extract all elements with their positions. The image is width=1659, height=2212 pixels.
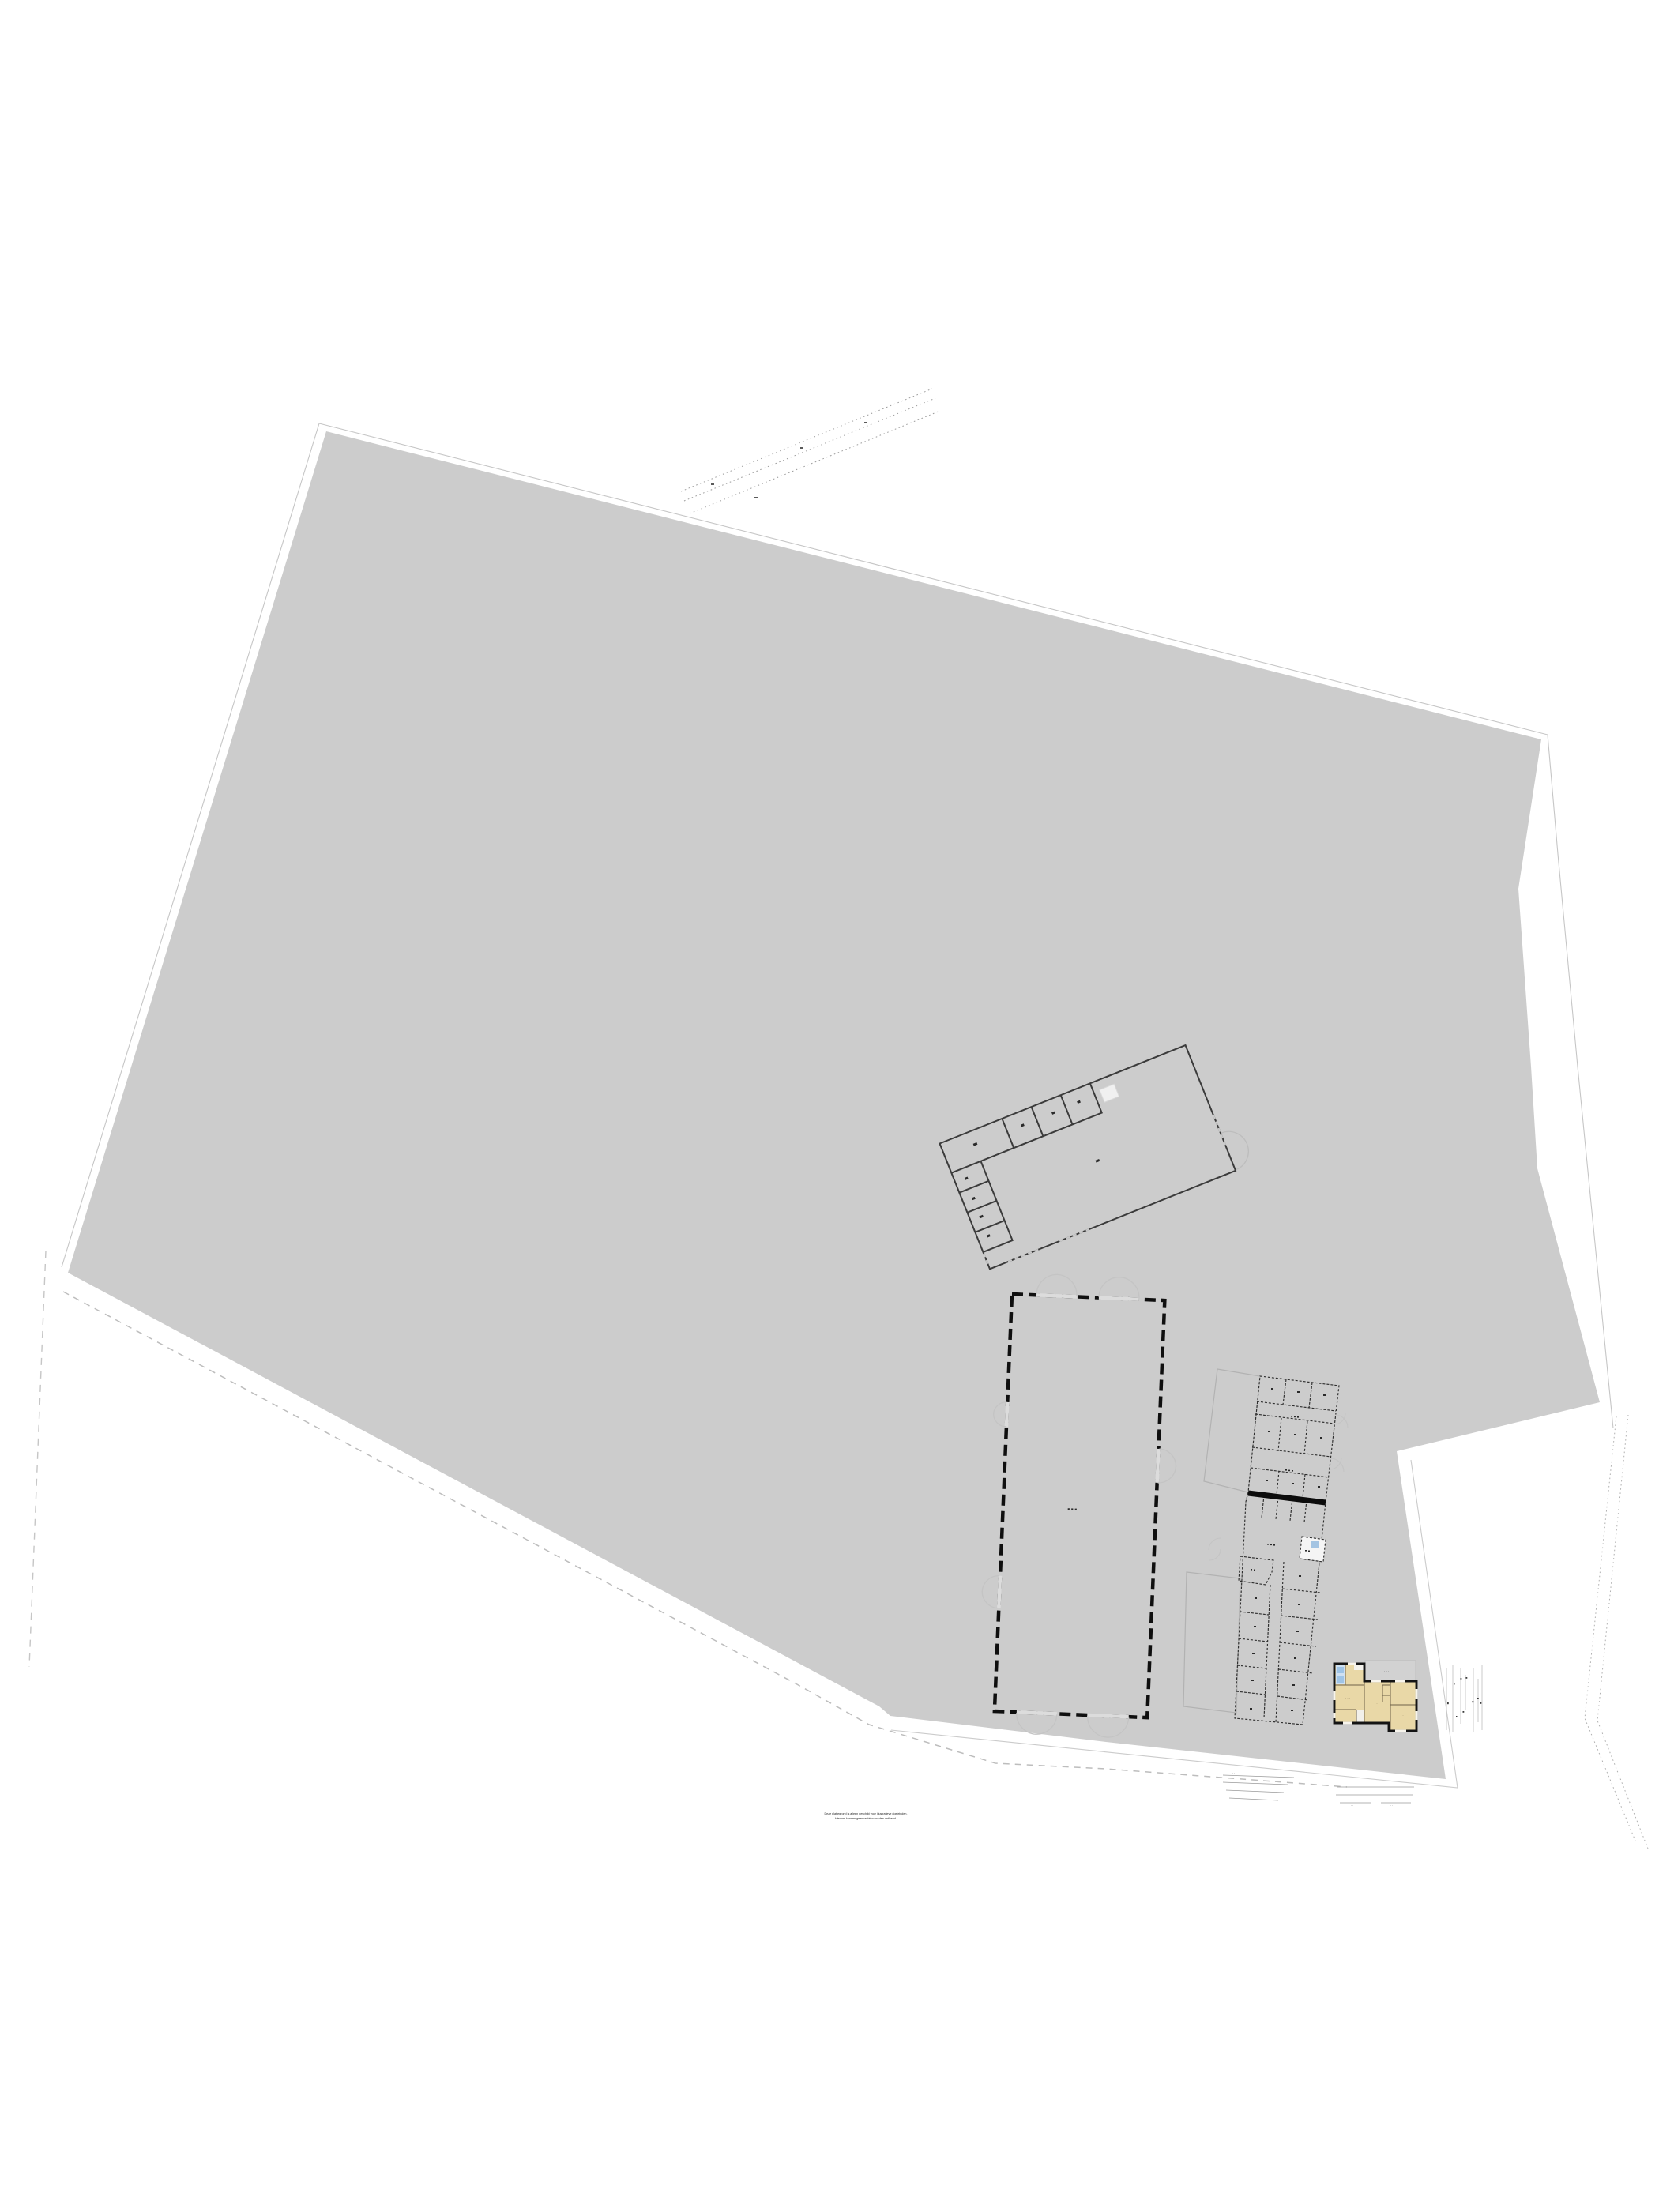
svg-text:. . .: . . .: [1384, 1668, 1389, 1672]
svg-text:Deze plattegrond is alleen ges: Deze plattegrond is alleen geschikt voor…: [825, 1812, 908, 1815]
svg-text:Hieraan kunnen geen rechten wo: Hieraan kunnen geen rechten worden ontle…: [835, 1817, 897, 1820]
svg-text:. . .: . . .: [1375, 1701, 1379, 1705]
svg-text:. .: . .: [1232, 1770, 1235, 1774]
svg-text:.: .: [1345, 1714, 1346, 1718]
svg-text:...: ...: [1206, 1624, 1209, 1629]
svg-text:. .: . .: [1390, 1803, 1393, 1807]
svg-text:. . .: . . .: [1401, 1692, 1405, 1696]
svg-text:. .: . .: [1351, 1803, 1353, 1807]
svg-text:. .: . .: [1371, 1782, 1373, 1786]
svg-text:. . .: . . .: [1401, 1713, 1405, 1717]
svg-text:. .: . .: [1351, 1673, 1354, 1677]
svg-text:. . .: . . .: [1345, 1695, 1350, 1699]
